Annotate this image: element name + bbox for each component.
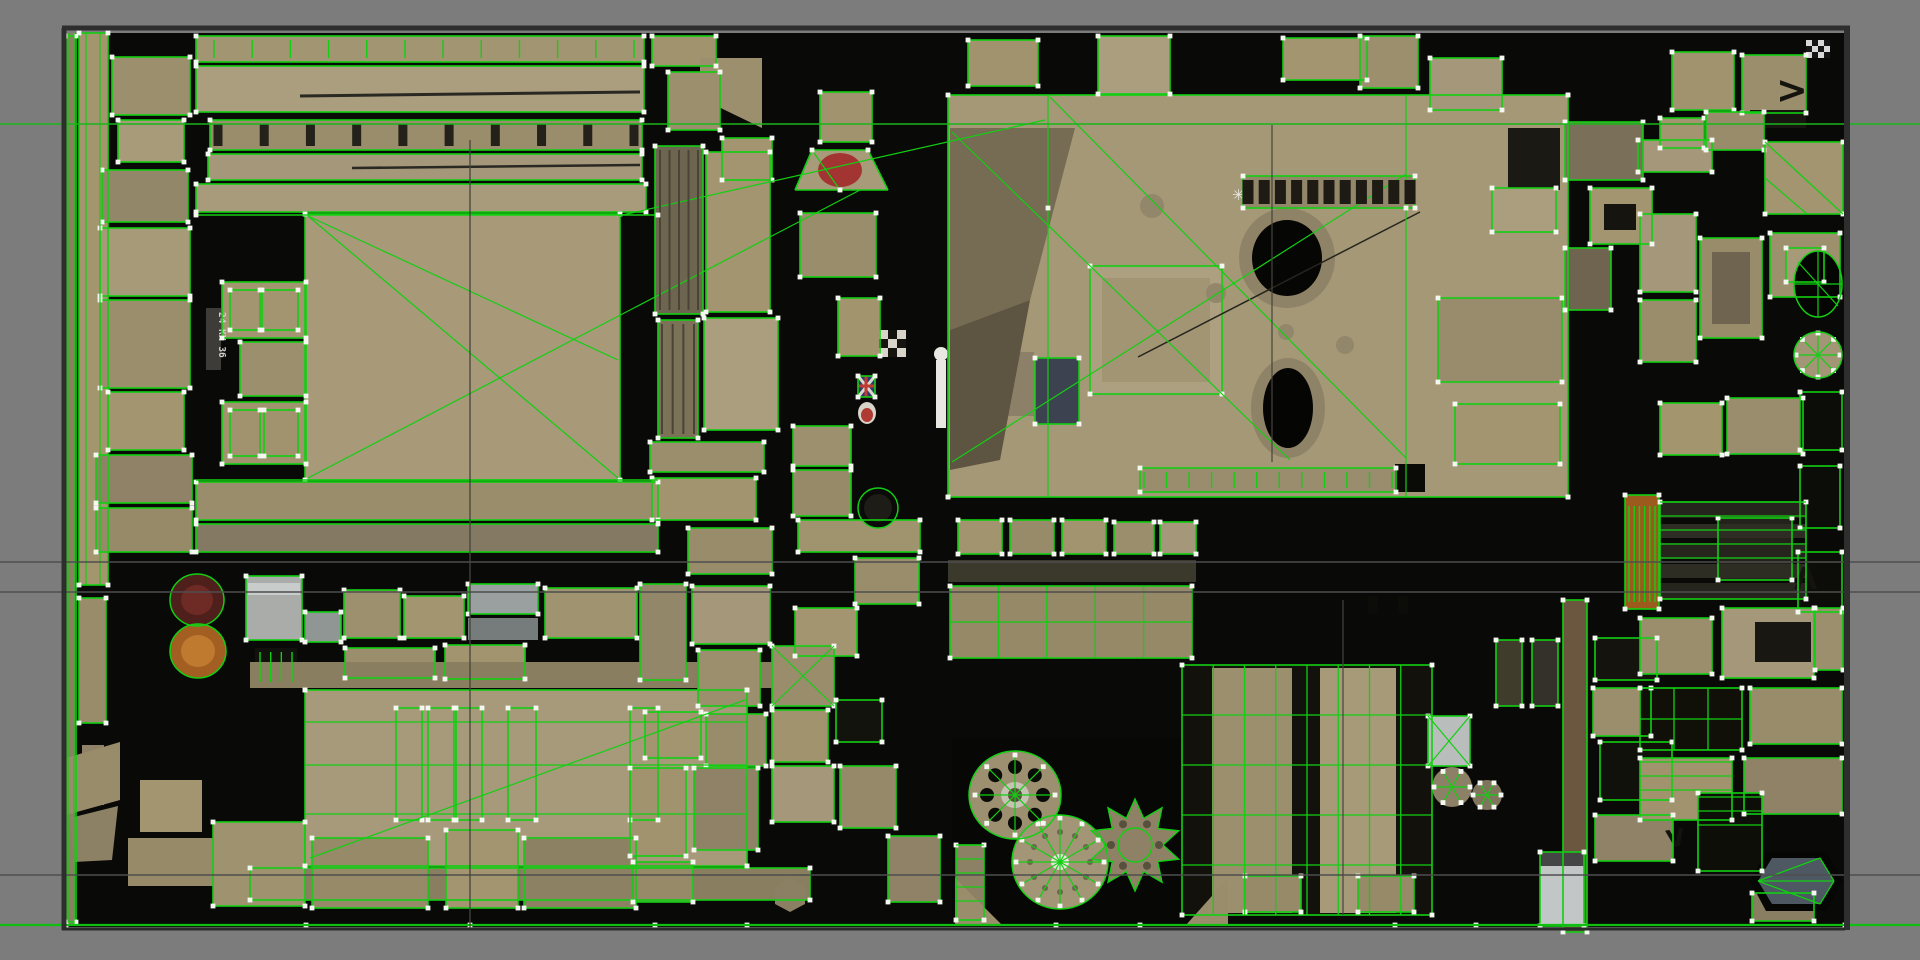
uv-vertex [343,646,348,651]
uv-vertex [1822,246,1827,251]
uv-vertex [866,148,871,153]
uv-vertex [718,70,723,75]
uv-vertex [1152,552,1157,557]
uv-vertex [1623,493,1628,498]
uv-vertex [720,178,725,183]
uv-vertex [426,706,431,711]
uv-vertex [982,918,987,923]
texture-detail [181,635,215,667]
texture-detail [861,408,873,422]
uv-vertex [1840,448,1845,453]
uv-vertex [211,904,216,909]
uv-island [704,318,778,430]
uv-vertex [628,854,633,859]
uv-vertex [1168,34,1173,39]
uv-island [958,520,1002,554]
uv-vertex [1428,108,1433,113]
uv-vertex [1796,610,1801,615]
uv-vertex [770,526,775,531]
uv-vertex [1478,805,1483,810]
uv-vertex [1740,686,1745,691]
uv-island [1395,464,1425,492]
uv-island [128,838,214,886]
uv-vertex [248,898,253,903]
uv-vertex [838,188,843,193]
uv-vertex [770,764,775,769]
uv-vertex [762,470,767,475]
uv-vertex [534,818,539,823]
uv-vertex [1671,813,1676,818]
uv-vertex [523,643,528,648]
uv-vertex [104,721,109,726]
uv-vertex [1080,821,1085,826]
uv-vertex [849,514,854,519]
uv-vertex [454,818,459,823]
uv-vertex [506,706,511,711]
uv-vertex [77,596,82,601]
uv-vertex [642,34,647,39]
texture-detail [1252,220,1322,296]
checker-decal [1818,52,1824,58]
uv-island [112,57,190,115]
uv-vertex [1670,108,1675,113]
uv-vertex [116,118,121,123]
uv-vertex [1500,56,1505,61]
uv-island [1160,522,1196,554]
uv-vertex [1490,230,1495,235]
checker-decal [888,330,897,339]
uv-island [1640,214,1696,292]
uv-island [96,455,192,503]
uv-island [1640,618,1712,674]
uv-island [1755,622,1811,662]
uv-vertex [758,648,763,653]
uv-vertex [1694,212,1699,217]
uv-vertex [1804,53,1809,58]
uv-vertex [818,140,823,145]
uv-vertex [310,836,315,841]
uv-vertex [182,390,187,395]
uv-vertex [1768,231,1773,236]
uv-vertex [1694,360,1699,365]
uv-vertex [1840,742,1845,747]
uv-vertex [1710,672,1715,677]
uv-vertex [650,518,655,523]
uv-vertex [640,118,645,123]
uv-vertex [220,280,225,285]
uv-island [650,442,764,472]
uv-vertex [702,316,707,321]
uv-vertex [1657,493,1662,498]
uv-island [1565,248,1611,310]
uv-vertex [194,522,199,527]
uv-island [1727,398,1803,454]
wheel-hole [1119,862,1127,870]
uv-vertex [106,31,111,36]
uv-vertex [696,436,701,441]
uv-vertex [686,572,691,577]
uv-vertex [1750,919,1755,924]
uv-vertex [1813,606,1818,611]
uv-island [1430,58,1502,110]
uv-vertex [1790,578,1795,583]
uv-vertex [1710,616,1715,621]
uv-vertex [1566,495,1571,500]
uv-vertex [1077,422,1082,427]
uv-vertex [1500,108,1505,113]
uv-vertex [1404,206,1409,211]
uv-island [968,40,1038,86]
uv-island [1283,38,1367,80]
uv-vertex [1556,638,1561,643]
uv-vertex [720,136,725,141]
uv-vertex [956,552,961,557]
uv-vertex [714,64,719,69]
uv-vertex [1441,800,1446,805]
uv-vertex [1014,860,1019,865]
uv-island [446,830,518,908]
uv-vertex [303,864,308,869]
uv-vertex [1730,818,1735,823]
uv-editor-viewport: 24 КХ 36>Λ✳V [0,0,1920,960]
uv-vertex [220,400,225,405]
uv-vertex [880,740,885,745]
uv-vertex [791,514,796,519]
uv-vertex [1013,833,1018,838]
uv-vertex [1158,552,1163,557]
uv-vertex [1671,859,1676,864]
uv-island [1660,543,1806,559]
uv-vertex [1710,138,1715,143]
uv-vertex [666,128,671,133]
uv-vertex [1036,84,1041,89]
uv-vertex [702,428,707,433]
uv-vertex [1638,756,1643,761]
uv-vertex [228,328,233,333]
uv-vertex [304,280,309,285]
uv-vertex [1710,170,1715,175]
uv-vertex [1598,740,1603,745]
uv-vertex [1768,295,1773,300]
uv-island [772,766,834,822]
uv-island [772,710,828,762]
uv-vertex [791,468,796,473]
uv-vertex [1655,636,1660,641]
checker-decal [1812,40,1818,46]
texture-detail [181,585,213,615]
uv-vertex [1801,396,1806,401]
uv-island [196,184,646,212]
uv-vertex [1060,552,1065,557]
uv-vertex [873,395,878,400]
uv-vertex [1520,704,1525,709]
uv-vertex [808,866,813,871]
uv-vertex [1593,678,1598,683]
uv-vertex [656,436,661,441]
uv-island [1368,596,1378,614]
uv-vertex [798,275,803,280]
texture-detail [1336,336,1354,354]
uv-vertex [1609,246,1614,251]
uv-vertex [1220,264,1225,269]
uv-vertex [796,550,801,555]
uv-vertex [699,756,704,761]
uv-vertex [1441,769,1446,774]
uv-vertex [1041,764,1046,769]
uv-island [838,298,880,356]
uv-island [102,170,188,222]
uv-vertex [1748,686,1753,691]
uv-vertex [190,506,195,511]
uv-vertex [894,764,899,769]
uv-vertex [1494,704,1499,709]
uv-vertex [656,522,661,527]
uv-vertex [1591,686,1596,691]
uv-vertex [692,848,697,853]
uv-island [692,586,770,644]
uv-vertex [834,698,839,703]
uv-vertex [1763,212,1768,217]
uv-vertex [1784,280,1789,285]
uv-island [1815,608,1843,670]
uv-vertex [1812,676,1817,681]
uv-vertex [791,424,796,429]
uv-vertex [206,152,211,157]
checker-decal [1812,46,1818,52]
uv-island [1595,815,1673,861]
uv-island [196,36,644,62]
uv-vertex [849,424,854,429]
uv-vertex [1720,676,1725,681]
uv-vertex [206,178,211,183]
uv-vertex [1412,910,1417,915]
uv-vertex [1798,448,1803,453]
uv-island [1010,520,1054,554]
uv-vertex [1638,290,1643,295]
uv-vertex [1636,138,1641,143]
uv-island [1492,188,1556,232]
uv-vertex [1658,401,1663,406]
uv-vertex [631,860,636,865]
uv-vertex [648,440,653,445]
uv-vertex [1041,821,1046,826]
uv-island [1114,522,1154,554]
uv-island [1660,564,1806,578]
uv-vertex [1088,392,1093,397]
checker-decal [1812,52,1818,58]
uv-vertex [426,906,431,911]
uv-island [855,558,919,604]
uv-vertex [631,900,636,905]
uv-vertex [853,556,858,561]
uv-vertex [686,526,691,531]
uv-vertex [1556,704,1561,709]
uv-vertex [644,182,649,187]
uv-island [196,66,644,112]
uv-vertex [684,582,689,587]
uv-vertex [696,704,701,709]
uv-vertex [1623,607,1628,612]
uv-vertex [1190,584,1195,589]
uv-vertex [946,93,951,98]
uv-vertex [1838,526,1843,531]
uv-vertex [1582,850,1587,855]
uv-vertex [506,818,511,823]
uv-vertex [543,586,548,591]
uv-vertex [248,866,253,871]
uv-vertex [656,213,661,218]
uv-island [1496,640,1522,706]
uv-vertex [1698,236,1703,241]
uv-island [524,838,636,908]
uv-vertex [886,900,891,905]
uv-vertex [1798,390,1803,395]
uv-vertex [1112,520,1117,525]
uv-vertex [1530,638,1535,643]
texture-detail [864,494,892,522]
uv-vertex [304,400,309,405]
uv-vertex [228,408,233,413]
uv-vertex [1813,668,1818,673]
uv-vertex [984,764,989,769]
uv-vertex [1760,336,1765,341]
uv-vertex [296,328,301,333]
uv-island [820,92,872,142]
texture-detail [1278,324,1294,340]
uv-vertex [220,336,225,341]
checker-decal [1824,52,1830,58]
checker-decal [888,339,897,348]
checker-decal [1824,46,1830,52]
uv-vertex [642,64,647,69]
uv-vertex [1796,550,1801,555]
uv-vertex [1036,898,1041,903]
uv-island [698,650,760,706]
uv-vertex [1840,390,1845,395]
uv-vertex [303,904,308,909]
uv-vertex [188,55,193,60]
uv-vertex [1096,92,1101,97]
uv-vertex [1588,186,1593,191]
uv-vertex [1638,360,1643,365]
uv-island [688,528,772,574]
uv-vertex [938,900,943,905]
checker-decal [897,330,906,339]
uv-vertex [1000,552,1005,557]
uv-island [1245,876,1301,912]
uv-vertex [296,408,301,413]
uv-vertex [808,898,813,903]
uv-texture-canvas[interactable]: 24 КХ 36>Λ✳V [0,0,1920,960]
uv-vertex [1190,656,1195,661]
uv-vertex [1281,36,1286,41]
uv-vertex [1281,78,1286,83]
uv-island [100,300,190,388]
uv-vertex [303,820,308,825]
uv-vertex [1413,206,1418,211]
uv-island [1035,358,1079,424]
uv-island [798,520,920,552]
uv-vertex [1241,174,1246,179]
uv-vertex [1696,791,1701,796]
uv-vertex [1520,638,1525,643]
uv-vertex [1593,636,1598,641]
uv-vertex [1459,800,1464,805]
uv-vertex [1585,598,1590,603]
uv-vertex [666,70,671,75]
uv-vertex [1636,170,1641,175]
uv-island [836,700,882,742]
uv-vertex [754,476,759,481]
uv-island [1532,640,1558,706]
uv-vertex [522,836,527,841]
uv-vertex [1762,110,1767,115]
uv-vertex [342,636,347,641]
uv-vertex [1563,308,1568,313]
uv-vertex [1658,597,1663,602]
uv-vertex [1019,882,1024,887]
uv-vertex [696,318,701,323]
uv-vertex [756,766,761,771]
uv-vertex [190,453,195,458]
uv-vertex [1742,756,1747,761]
uv-vertex [855,606,860,611]
uv-vertex [1563,178,1568,183]
uv-vertex [1804,111,1809,116]
uv-vertex [1840,686,1845,691]
uv-vertex [638,678,643,683]
uv-island [118,120,184,162]
uv-vertex [1658,453,1663,458]
uv-vertex [1742,812,1747,817]
uv-vertex [1649,734,1654,739]
uv-vertex [832,764,837,769]
checker-decal [897,348,906,357]
uv-vertex [296,454,301,459]
uv-vertex [643,756,648,761]
checker-decal [1818,46,1824,52]
uv-island [196,482,658,520]
uv-vertex [1558,402,1563,407]
uv-vertex [296,288,301,293]
uv-island [793,426,851,466]
uv-island [468,618,538,640]
checker-decal [1806,40,1812,46]
uv-vertex [106,583,111,588]
uv-vertex [211,820,216,825]
uv-vertex [1046,206,1051,211]
uv-vertex [116,160,121,165]
uv-vertex [1158,520,1163,525]
uv-vertex [462,594,467,599]
uv-island [1800,392,1842,450]
uv-vertex [768,584,773,589]
uv-island [305,612,341,642]
uv-vertex [1840,756,1845,761]
uv-vertex [1704,148,1709,153]
uv-island [1062,520,1106,554]
uv-vertex [1413,174,1418,179]
uv-vertex [1598,798,1603,803]
uv-vertex [1499,793,1504,798]
uv-vertex [938,834,943,839]
checker-decal [1824,40,1830,46]
uv-vertex [1096,34,1101,39]
uv-vertex [1784,246,1789,251]
texture-detail [1206,283,1226,303]
uv-vertex [402,636,407,641]
uv-vertex [798,211,803,216]
